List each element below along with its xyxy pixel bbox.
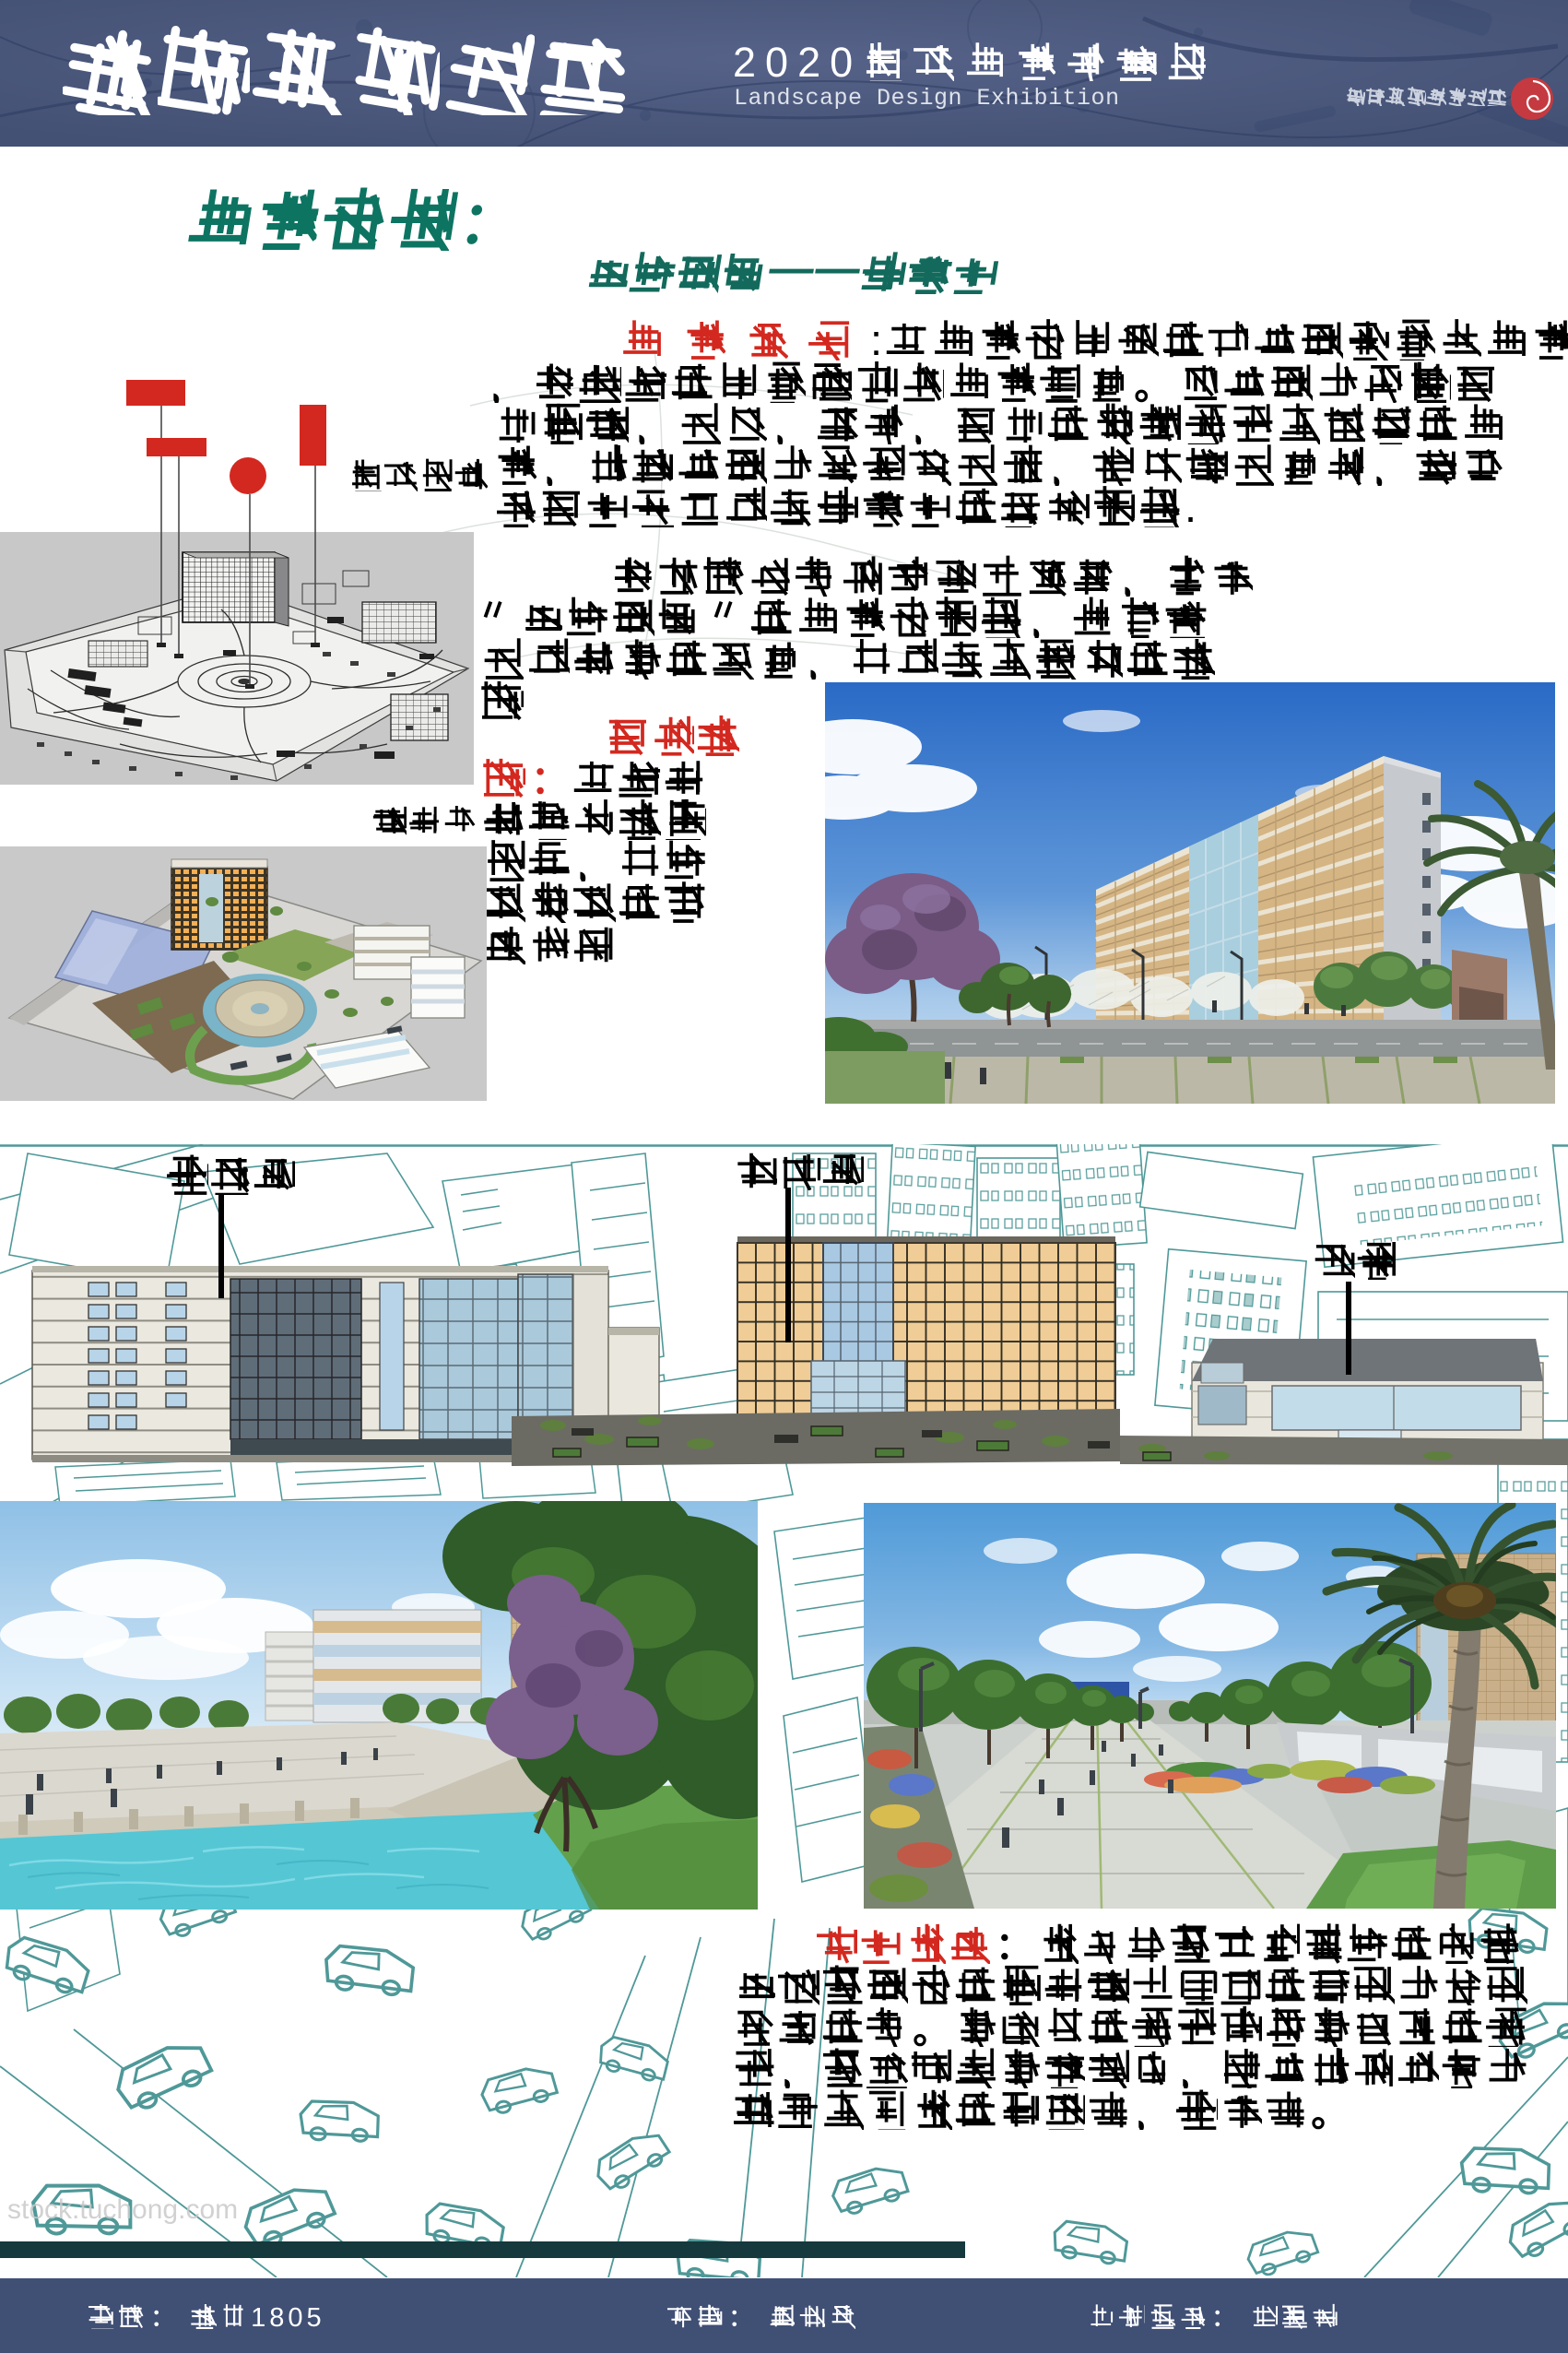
svg-text:stock.tuchong.com: stock.tuchong.com [7,2194,238,2225]
